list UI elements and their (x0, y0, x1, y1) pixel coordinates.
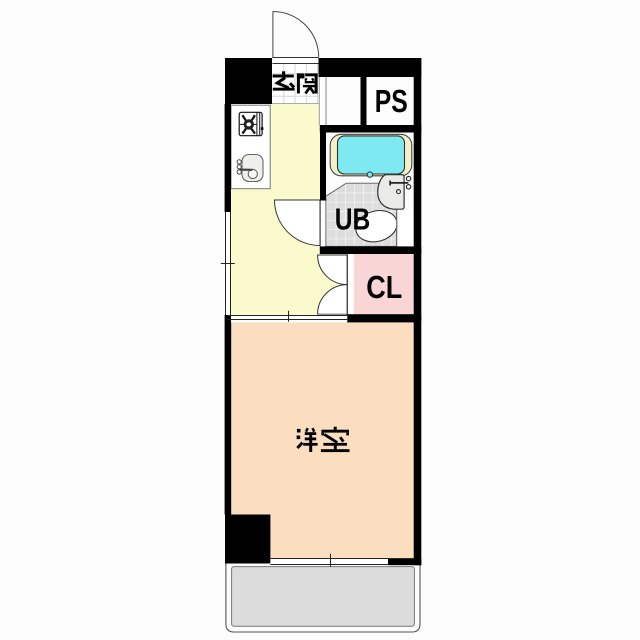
svg-text:PS: PS (375, 83, 408, 119)
svg-text:CL: CL (366, 269, 402, 305)
svg-text:UB: UB (335, 202, 371, 236)
